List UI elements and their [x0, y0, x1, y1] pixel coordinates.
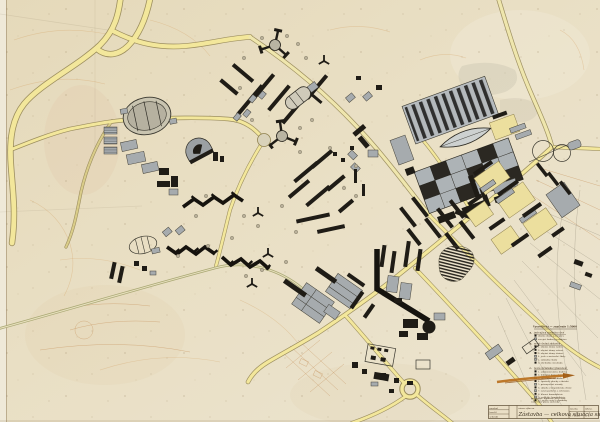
- title-block-row-label: kreslil: [490, 411, 497, 414]
- title-block-field-label: názov výkresu: [519, 407, 535, 410]
- legend-title: Vysvetlivky — značenie 1:5000: [532, 325, 577, 329]
- title-block-row-label: schválil: [490, 415, 499, 418]
- scanned-site-plan: Vysvetlivky — značenie 1:5000 a. jestvuj…: [0, 0, 600, 422]
- title-block-note-2: celkového plánu zástavby: [531, 400, 560, 403]
- sheet-label: výkres: [585, 408, 593, 411]
- scale-value: 1 : 5000: [570, 414, 580, 417]
- legend-marker-b: b.: [530, 342, 533, 346]
- scale-label: mierka: [570, 408, 578, 411]
- legend-marker-c: c.: [530, 367, 533, 370]
- legend-item: verejné budovy jestvujúce: [538, 338, 568, 341]
- site-plan-map: Vysvetlivky — značenie 1:5000 a. jestvuj…: [0, 0, 600, 422]
- legend-item: 6. obchodné strediská: [538, 362, 563, 365]
- legend-marker-a: a.: [530, 332, 533, 335]
- title-block-row-label: navrhol: [490, 407, 499, 410]
- sheet-value: č. 3: [585, 414, 590, 417]
- plaza-circle: [258, 134, 271, 147]
